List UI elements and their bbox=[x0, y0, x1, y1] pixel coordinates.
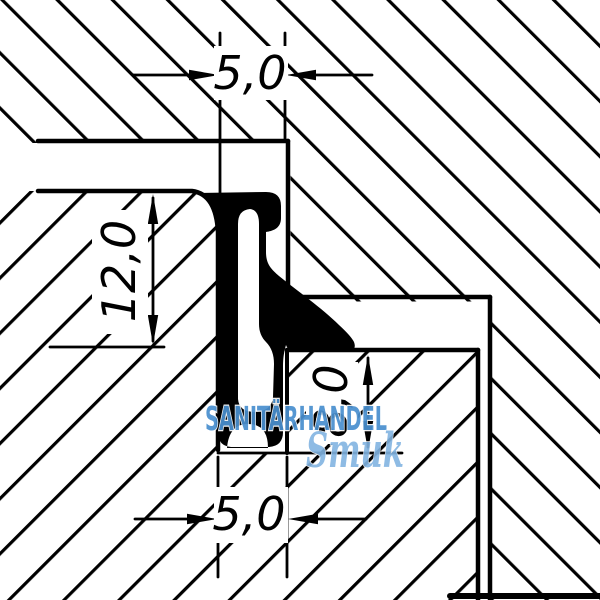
drawing-canvas: 5,0 12,0 8,0 5,0 SANITÄRHANDEL Smuk bbox=[0, 0, 600, 600]
watermark-brand-name: Smuk bbox=[306, 423, 404, 479]
dimension-label-rebate-height: 12,0 bbox=[92, 220, 146, 322]
dimension-label-groove-width-top: 5,0 bbox=[213, 46, 286, 100]
dimension-label-groove-width-bottom: 5,0 bbox=[212, 487, 285, 541]
seal-cross-section-diagram: 5,0 12,0 8,0 5,0 SANITÄRHANDEL Smuk bbox=[0, 0, 600, 600]
